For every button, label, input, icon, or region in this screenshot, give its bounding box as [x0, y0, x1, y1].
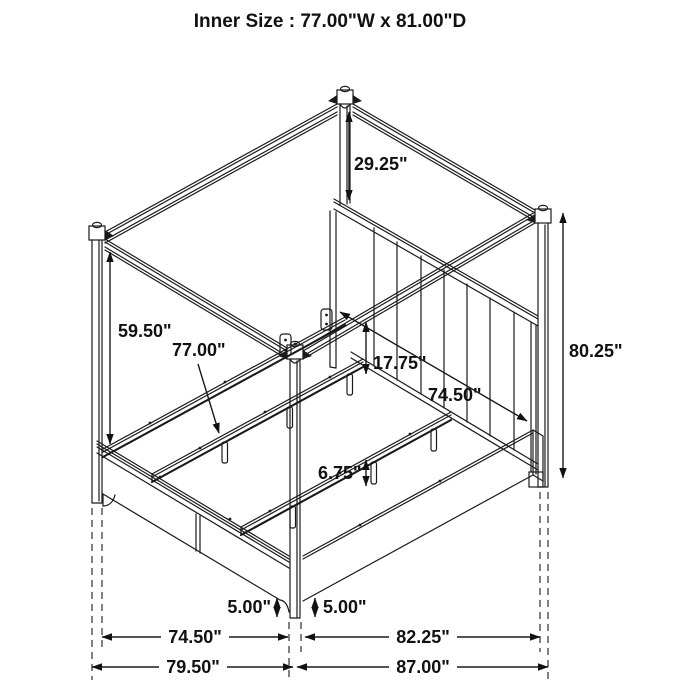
dim-label-rail-inner-length: 74.50" — [428, 385, 482, 405]
bed-dimension-diagram-page: Inner Size : 77.00"W x 81.00"D 29.25" 59… — [0, 0, 700, 700]
slat-leg — [347, 374, 353, 395]
diagram-title: Inner Size : 77.00"W x 81.00"D — [194, 11, 467, 32]
footboard-foot-left — [103, 494, 115, 506]
slat-leg — [371, 462, 377, 484]
dim-label-overall-width: 79.50" — [166, 657, 220, 677]
slat-leg — [431, 429, 437, 451]
dimension-labels: Inner Size : 77.00"W x 81.00"D 29.25" 59… — [118, 11, 623, 677]
dim-label-clearance-left: 5.00" — [227, 597, 271, 617]
footboard-foot-right — [280, 600, 289, 612]
footboard — [97, 441, 289, 612]
dim-label-inner-width: 77.00" — [172, 340, 226, 360]
slat-leg — [222, 442, 228, 463]
dim-label-side-rail-length: 82.25" — [396, 627, 450, 647]
headboard-tufting-lines — [374, 228, 514, 450]
dim-label-clearance-right: 5.00" — [323, 597, 367, 617]
bed-dimension-diagram: Inner Size : 77.00"W x 81.00"D 29.25" 59… — [0, 0, 700, 700]
extension-lines — [92, 492, 548, 682]
headboard — [330, 199, 538, 474]
dimension-annotations — [92, 112, 563, 667]
canopy-corner-back — [328, 86, 362, 108]
dim-label-footboard-width: 74.50" — [168, 627, 222, 647]
canopy-corner-left — [89, 222, 114, 240]
dim-label-slat-leg: 6.75" — [318, 463, 362, 483]
dim-label-platform-to-canopy: 17.75" — [373, 353, 427, 373]
slat-leg — [290, 506, 296, 528]
front-side-rail — [303, 430, 543, 601]
dim-label-canopy-drop: 29.25" — [354, 154, 408, 174]
dim-label-open-height: 59.50" — [118, 321, 172, 341]
dim-label-overall-height: 80.25" — [569, 341, 623, 361]
canopy-corner-right — [526, 205, 551, 223]
dim-label-overall-depth: 87.00" — [396, 657, 450, 677]
